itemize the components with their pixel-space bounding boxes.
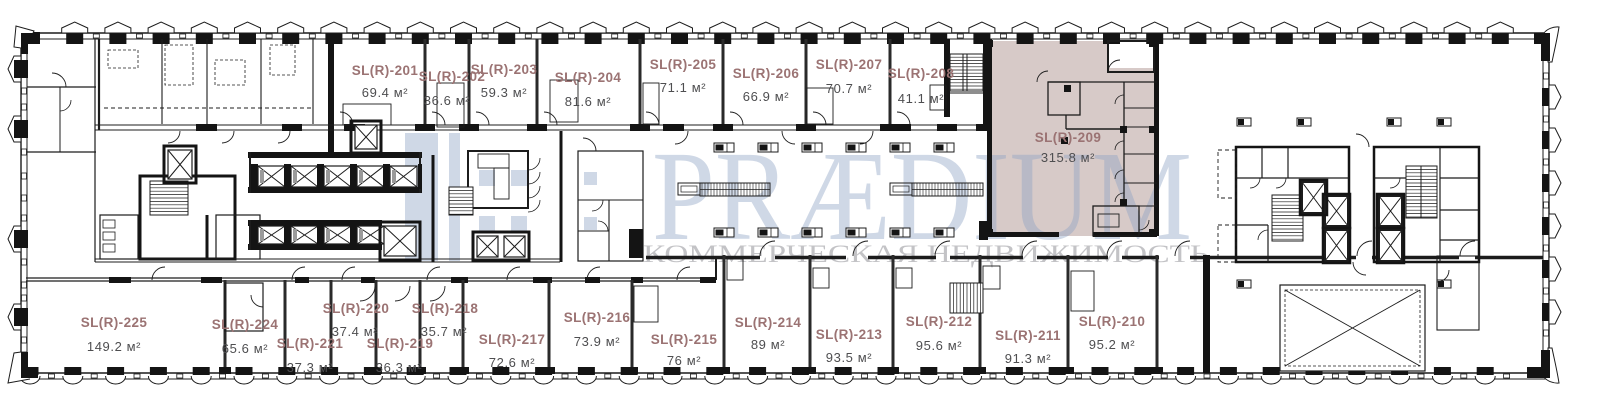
- svg-text:SL(R)-207: SL(R)-207: [816, 57, 883, 72]
- svg-text:69.4 м²: 69.4 м²: [362, 85, 408, 100]
- svg-text:SL(R)-205: SL(R)-205: [650, 57, 717, 72]
- svg-text:59.3 м²: 59.3 м²: [481, 85, 527, 100]
- svg-text:SL(R)-213: SL(R)-213: [816, 327, 883, 342]
- svg-text:SL(R)-218: SL(R)-218: [412, 301, 479, 316]
- svg-text:66.9 м²: 66.9 м²: [743, 89, 789, 104]
- svg-text:149.2 м²: 149.2 м²: [87, 339, 141, 354]
- svg-text:КОММЕРЧЕСКАЯ НЕДВИЖИМОСТЬ: КОММЕРЧЕСКАЯ НЕДВИЖИМОСТЬ: [643, 241, 1209, 268]
- svg-text:95.2 м²: 95.2 м²: [1089, 337, 1135, 352]
- svg-text:41.1 м²: 41.1 м²: [898, 91, 944, 106]
- svg-text:71.1 м²: 71.1 м²: [660, 80, 706, 95]
- svg-text:SL(R)-203: SL(R)-203: [471, 62, 538, 77]
- svg-text:SL(R)-204: SL(R)-204: [555, 70, 622, 85]
- svg-text:37.3 м²: 37.3 м²: [287, 360, 333, 375]
- svg-text:SL(R)-201: SL(R)-201: [352, 63, 419, 78]
- svg-text:SL(R)-220: SL(R)-220: [323, 301, 390, 316]
- svg-text:315.8 м²: 315.8 м²: [1041, 150, 1095, 165]
- svg-text:76 м²: 76 м²: [667, 353, 701, 368]
- svg-text:SL(R)-214: SL(R)-214: [735, 315, 802, 330]
- svg-text:SL(R)-215: SL(R)-215: [651, 332, 718, 347]
- svg-text:SL(R)-217: SL(R)-217: [479, 332, 546, 347]
- svg-text:SL(R)-216: SL(R)-216: [564, 310, 631, 325]
- svg-text:SL(R)-211: SL(R)-211: [995, 328, 1061, 343]
- svg-text:SL(R)-212: SL(R)-212: [906, 314, 973, 329]
- svg-text:SL(R)-208: SL(R)-208: [888, 66, 955, 81]
- svg-text:SL(R)-224: SL(R)-224: [212, 317, 279, 332]
- svg-text:65.6 м²: 65.6 м²: [222, 341, 268, 356]
- svg-text:SL(R)-209: SL(R)-209: [1035, 130, 1102, 145]
- svg-text:81.6 м²: 81.6 м²: [565, 94, 611, 109]
- svg-text:35.7 м²: 35.7 м²: [421, 324, 467, 339]
- svg-text:36.6 м²: 36.6 м²: [424, 93, 470, 108]
- svg-text:89 м²: 89 м²: [751, 337, 785, 352]
- svg-text:72.6 м²: 72.6 м²: [489, 355, 535, 370]
- svg-text:95.6 м²: 95.6 м²: [916, 338, 962, 353]
- svg-text:73.9 м²: 73.9 м²: [574, 334, 620, 349]
- svg-text:SL(R)-210: SL(R)-210: [1079, 314, 1146, 329]
- svg-text:36.3 м²: 36.3 м²: [376, 360, 422, 375]
- svg-text:91.3 м²: 91.3 м²: [1005, 351, 1051, 366]
- svg-text:SL(R)-206: SL(R)-206: [733, 66, 800, 81]
- svg-text:70.7 м²: 70.7 м²: [826, 81, 872, 96]
- svg-text:SL(R)-225: SL(R)-225: [81, 315, 148, 330]
- svg-text:93.5 м²: 93.5 м²: [826, 350, 872, 365]
